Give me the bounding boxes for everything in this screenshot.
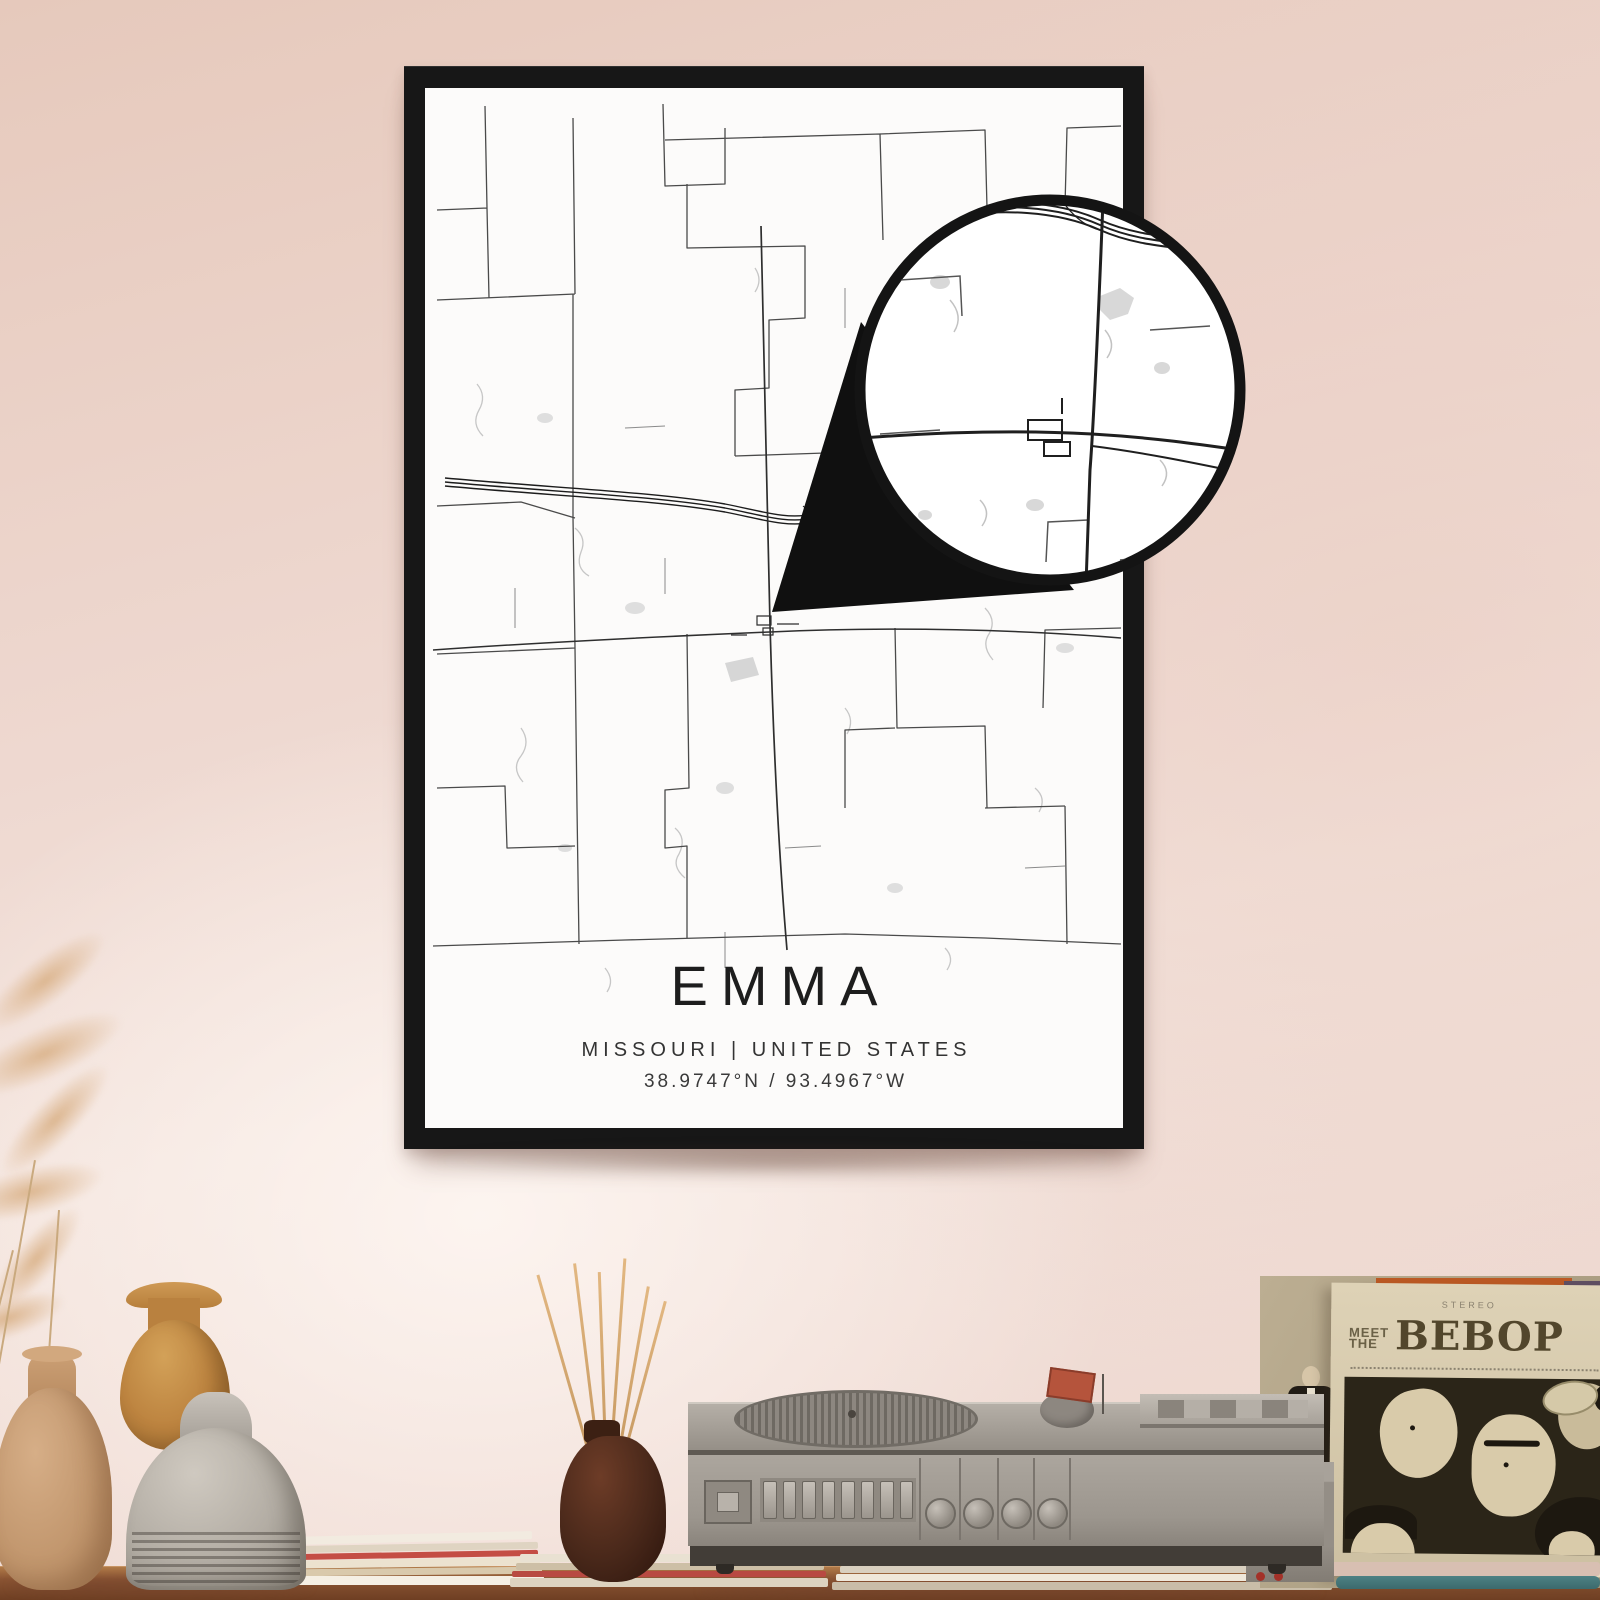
vase-tan bbox=[0, 1338, 116, 1590]
panel-divider bbox=[1033, 1458, 1035, 1540]
panel-divider bbox=[1069, 1458, 1071, 1540]
map-roads bbox=[433, 104, 1121, 946]
player-knob bbox=[1037, 1498, 1068, 1529]
preset-button bbox=[802, 1481, 816, 1519]
map-minor-roads bbox=[515, 288, 1065, 968]
teal-record-edge bbox=[1336, 1576, 1600, 1589]
panel-divider bbox=[997, 1458, 999, 1540]
sleeve-top-caption: STEREO bbox=[1331, 1299, 1600, 1312]
map-main-roads bbox=[433, 226, 1121, 950]
tonearm-rod bbox=[1102, 1374, 1104, 1414]
preset-button bbox=[880, 1481, 894, 1519]
suited-figure-head bbox=[1302, 1366, 1320, 1388]
eye-dot bbox=[1504, 1462, 1509, 1467]
preset-button bbox=[822, 1481, 836, 1519]
room-scene: EMMA MISSOURI | UNITED STATES 38.9747°N … bbox=[0, 0, 1600, 1600]
preset-button bbox=[763, 1481, 777, 1519]
diffuser-bottle bbox=[560, 1436, 666, 1582]
map-poster-print: EMMA MISSOURI | UNITED STATES 38.9747°N … bbox=[425, 88, 1123, 1128]
player-groove bbox=[688, 1450, 1324, 1455]
map-ponds bbox=[537, 383, 1074, 893]
panel-divider bbox=[919, 1458, 921, 1540]
vase-gray bbox=[126, 1392, 306, 1590]
record-sleeve-front: STEREO MEET THE BEBOP bbox=[1328, 1283, 1600, 1578]
diffuser-reed bbox=[536, 1275, 588, 1449]
jet-brow bbox=[1484, 1440, 1540, 1447]
poster-subtitle: MISSOURI | UNITED STATES bbox=[425, 1039, 1123, 1062]
pink-mat bbox=[1298, 1562, 1600, 1576]
platter-spindle bbox=[848, 1410, 856, 1418]
player-preset-buttons bbox=[760, 1478, 916, 1522]
player-lid-slots bbox=[1158, 1400, 1308, 1418]
player-base bbox=[690, 1546, 1322, 1566]
panel-divider bbox=[959, 1458, 961, 1540]
player-foot bbox=[1268, 1564, 1286, 1574]
preset-button bbox=[841, 1481, 855, 1519]
sleeve-title-block: MEET THE BEBOP bbox=[1349, 1317, 1564, 1357]
map-highway bbox=[445, 478, 891, 546]
preset-button bbox=[783, 1481, 797, 1519]
record-player bbox=[688, 1392, 1324, 1580]
player-power-button bbox=[704, 1480, 752, 1524]
player-foot bbox=[716, 1564, 734, 1574]
turntable-platter bbox=[734, 1390, 978, 1448]
poster-title: EMMA bbox=[425, 953, 1123, 1018]
poster-frame: EMMA MISSOURI | UNITED STATES 38.9747°N … bbox=[404, 66, 1144, 1149]
player-knob bbox=[1001, 1498, 1032, 1529]
sleeve-title: BEBOP bbox=[1395, 1317, 1564, 1357]
player-knob bbox=[925, 1498, 956, 1529]
tonearm-cartridge bbox=[1046, 1367, 1096, 1403]
poster-coordinates: 38.9747°N / 93.4967°W bbox=[425, 1071, 1123, 1093]
preset-button bbox=[861, 1481, 875, 1519]
eye-dot bbox=[1410, 1425, 1415, 1430]
face-ed bbox=[1373, 1384, 1464, 1484]
preset-button bbox=[900, 1481, 914, 1519]
sleeve-credit-line bbox=[1351, 1367, 1599, 1372]
player-knob bbox=[963, 1498, 994, 1529]
frame-shadow bbox=[412, 1148, 1138, 1176]
face-jet bbox=[1471, 1414, 1556, 1517]
papers-under-player bbox=[832, 1582, 1332, 1590]
